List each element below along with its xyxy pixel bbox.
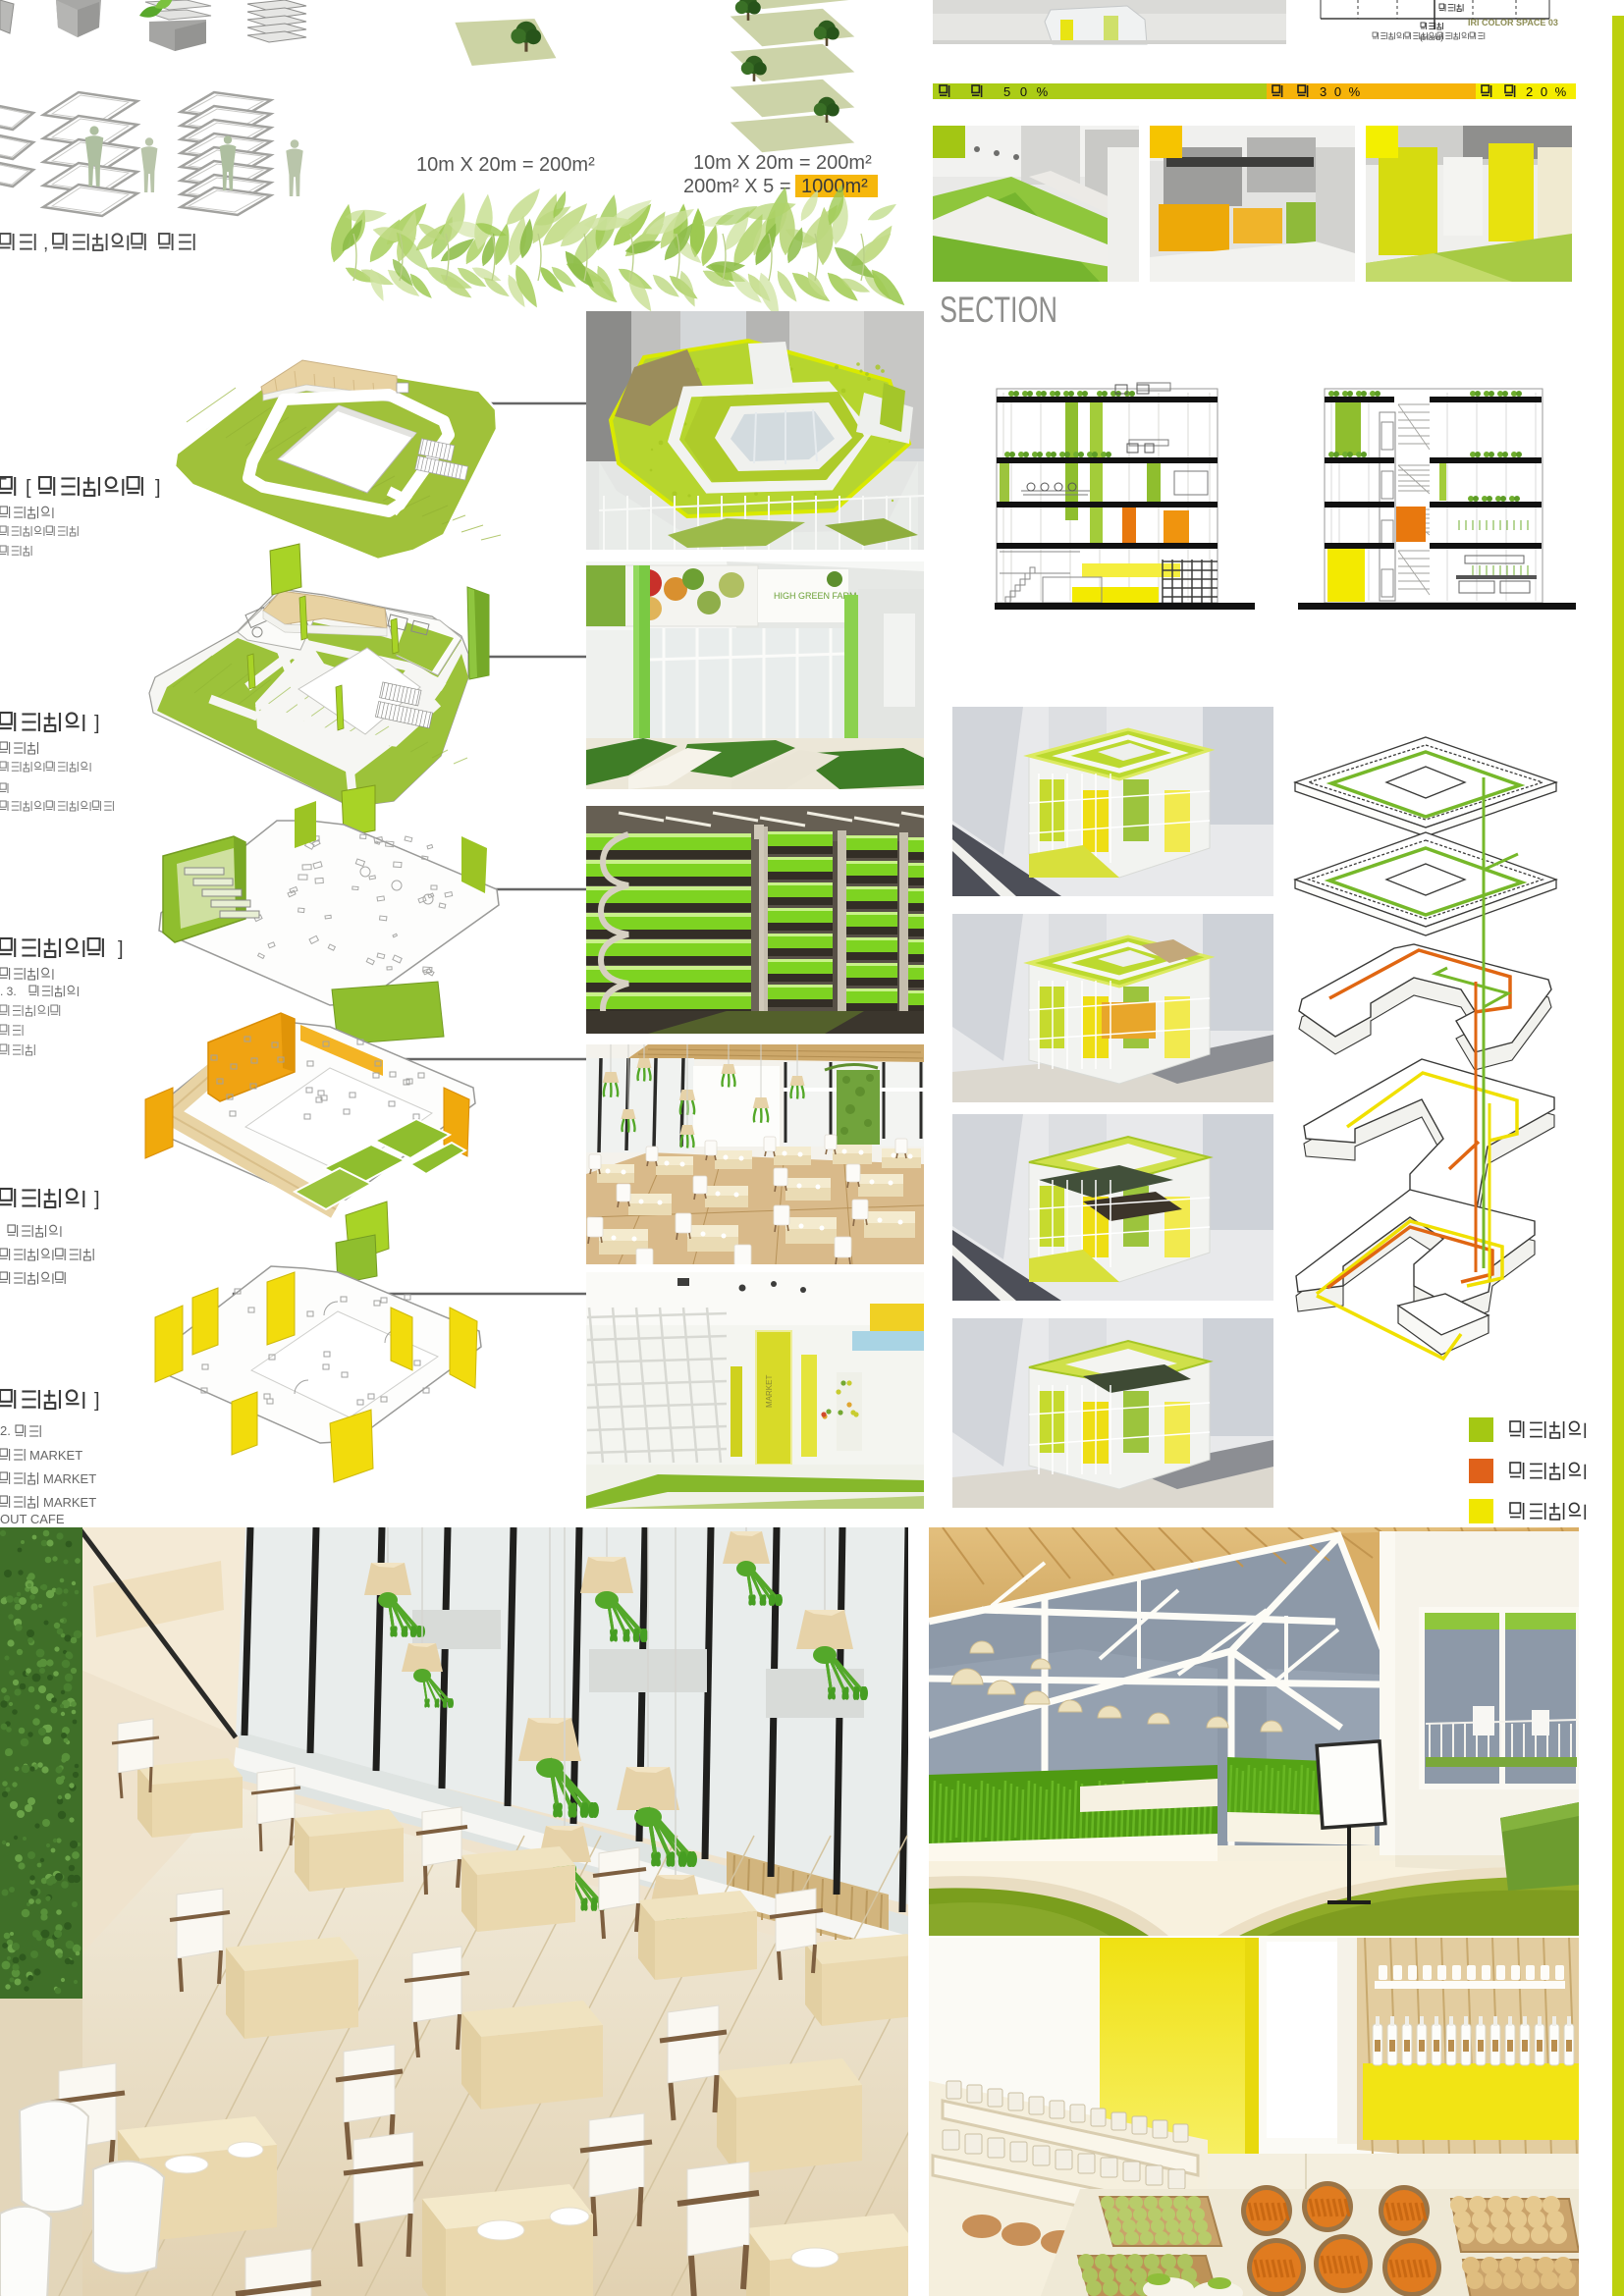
svg-text:]: ] bbox=[94, 1189, 100, 1210]
svg-text:MARKET: MARKET bbox=[29, 1448, 82, 1463]
svg-text:1000m²: 1000m² bbox=[801, 176, 868, 197]
svg-text:200m² X 5 =: 200m² X 5 = bbox=[683, 176, 791, 197]
svg-text:OUT CAFE: OUT CAFE bbox=[0, 1512, 65, 1526]
svg-text:]: ] bbox=[94, 1390, 100, 1412]
svg-text:]: ] bbox=[94, 713, 100, 734]
svg-text:IRI COLOR SPACE 03: IRI COLOR SPACE 03 bbox=[1468, 18, 1558, 27]
svg-text:5 0 %: 5 0 % bbox=[1003, 84, 1051, 99]
svg-text:,: , bbox=[43, 234, 48, 254]
svg-text:]: ] bbox=[118, 938, 124, 960]
svg-text:MARKET: MARKET bbox=[43, 1471, 96, 1486]
svg-text:MARKET: MARKET bbox=[765, 1375, 774, 1408]
svg-text:2 0 %: 2 0 % bbox=[1526, 84, 1568, 99]
svg-text:10m X 20m = 200m²: 10m X 20m = 200m² bbox=[416, 154, 595, 176]
svg-text:HIGH GREEN FARM: HIGH GREEN FARM bbox=[774, 591, 857, 601]
svg-text:MARKET: MARKET bbox=[43, 1495, 96, 1510]
svg-text:SECTION: SECTION bbox=[940, 290, 1057, 330]
svg-text:. 3.: . 3. bbox=[0, 985, 17, 998]
svg-text:[: [ bbox=[26, 477, 31, 499]
svg-text:2.: 2. bbox=[0, 1423, 11, 1438]
svg-text:10m X 20m = 200m²: 10m X 20m = 200m² bbox=[693, 152, 872, 174]
svg-text:3 0 %: 3 0 % bbox=[1320, 84, 1362, 99]
svg-text:]: ] bbox=[155, 477, 161, 499]
